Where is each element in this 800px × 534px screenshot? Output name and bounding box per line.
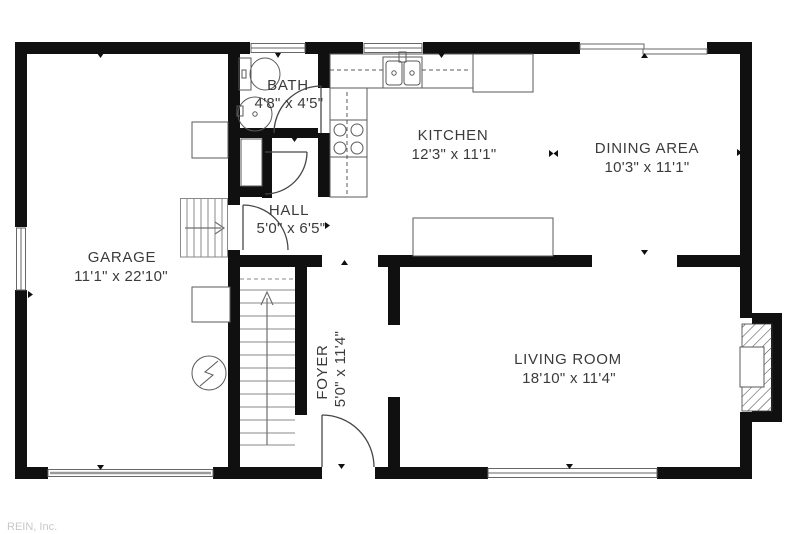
garage-wall-upper xyxy=(228,42,240,205)
dining-label: DINING AREA xyxy=(595,140,699,157)
garage-wall-lower xyxy=(228,250,240,479)
fireplace-wall-bottom xyxy=(752,411,782,422)
dining-slider-left xyxy=(580,44,644,49)
marker-bath-window xyxy=(275,53,281,58)
divider-wall-hall xyxy=(228,255,322,267)
marker-foyer-opening xyxy=(341,260,348,265)
dining-slider-right xyxy=(643,49,707,54)
stair-shaft-wall xyxy=(295,255,307,415)
hall-dims: 5'0" x 6'5" xyxy=(257,220,326,237)
living-label: LIVING ROOM xyxy=(514,351,622,368)
bath-label: BATH xyxy=(267,77,309,94)
divider-wall-dining xyxy=(677,255,752,267)
marker-top-garage xyxy=(97,53,104,58)
bath-right-wall-lower xyxy=(318,133,330,197)
marker-kitchen-dining-left xyxy=(549,150,554,157)
kitchen-dims: 12'3" x 11'1" xyxy=(411,146,496,163)
marker-bath-wall xyxy=(291,137,298,142)
marker-dining-opening xyxy=(641,250,648,255)
marker-hall-dim xyxy=(325,222,330,229)
bath-right-wall-upper xyxy=(318,42,330,88)
bath-dims: 4'8" x 4'5" xyxy=(255,95,324,112)
electrical-panel-icon xyxy=(192,356,226,390)
bath-bottom-wall xyxy=(240,128,318,138)
hall-label: HALL xyxy=(269,202,309,219)
wall-top-2 xyxy=(305,42,363,54)
foyer-stairs-icon xyxy=(240,279,295,445)
wall-left-1 xyxy=(15,42,27,227)
closet-right-wall xyxy=(262,138,272,198)
wall-left-2 xyxy=(15,290,27,479)
front-door xyxy=(322,415,374,467)
wall-bottom-4 xyxy=(657,467,752,479)
closet-bottom-wall xyxy=(237,186,263,197)
floorplan-page: GARAGE 11'1" x 22'10" BATH 4'8" x 4'5" H… xyxy=(0,0,800,534)
fireplace-icon xyxy=(740,313,782,422)
kitchen-label: KITCHEN xyxy=(418,127,489,144)
firebox xyxy=(740,347,764,387)
foyer-dims: 5'0" x 11'4" xyxy=(332,331,349,407)
garage-stairs-icon xyxy=(181,198,228,257)
wall-top-1 xyxy=(15,42,250,54)
fireplace-wall-outer xyxy=(771,313,782,422)
marker-garage-window xyxy=(28,291,33,298)
foyer-living-wall-lower xyxy=(388,397,400,467)
foyer-label: FOYER xyxy=(314,344,331,399)
living-dims: 18'10" x 11'4" xyxy=(522,370,616,387)
kitchen-peninsula xyxy=(413,218,553,256)
wall-top-3 xyxy=(423,42,580,54)
wall-bottom-1 xyxy=(15,467,48,479)
wall-right-1 xyxy=(740,42,752,318)
fridge-icon xyxy=(473,54,533,92)
appliance-box-lower xyxy=(192,287,230,322)
marker-kitchen-dining-right xyxy=(554,150,559,157)
dining-dims: 10'3" x 11'1" xyxy=(604,159,689,176)
marker-front-door xyxy=(338,464,345,469)
floorplan-drawing: GARAGE 11'1" x 22'10" BATH 4'8" x 4'5" H… xyxy=(0,0,800,534)
room-labels: GARAGE 11'1" x 22'10" BATH 4'8" x 4'5" H… xyxy=(74,77,699,407)
closet xyxy=(241,139,262,186)
watermark: REIN, Inc. xyxy=(7,521,57,533)
kitchen-counter-side xyxy=(330,88,367,197)
garage-dims: 11'1" x 22'10" xyxy=(74,268,168,285)
wall-bottom-3 xyxy=(375,467,488,479)
wall-right-2 xyxy=(740,412,752,479)
foyer-living-wall-upper xyxy=(388,255,400,325)
garage-label: GARAGE xyxy=(88,249,156,266)
divider-wall-kitchen xyxy=(378,255,592,267)
appliance-box-upper xyxy=(192,122,228,158)
